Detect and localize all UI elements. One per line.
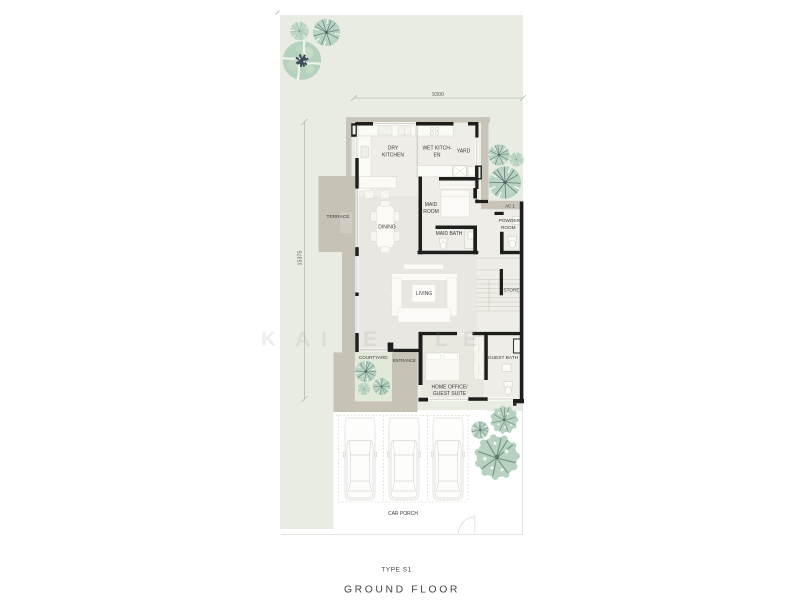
svg-text:EN: EN xyxy=(434,153,441,159)
svg-text:DINING: DINING xyxy=(378,225,396,231)
svg-text:POWDER: POWDER xyxy=(499,218,521,223)
svg-text:CAR PORCH: CAR PORCH xyxy=(388,511,418,517)
svg-text:9300: 9300 xyxy=(432,92,444,98)
svg-text:15375: 15375 xyxy=(298,251,304,266)
svg-text:TYPE S1: TYPE S1 xyxy=(381,567,412,574)
svg-text:COURTYARD: COURTYARD xyxy=(359,355,388,360)
svg-text:MAID BATH: MAID BATH xyxy=(436,231,463,237)
svg-text:GUEST BATH: GUEST BATH xyxy=(488,355,519,361)
svg-text:K: K xyxy=(261,328,276,351)
svg-text:TERRACE: TERRACE xyxy=(327,214,350,220)
svg-text:L: L xyxy=(435,328,448,351)
svg-text:DRY: DRY xyxy=(388,146,399,152)
svg-text:STORE: STORE xyxy=(503,288,519,293)
svg-text:ROOM: ROOM xyxy=(423,209,439,215)
svg-text:I: I xyxy=(321,328,327,351)
svg-text:GUEST SUITE: GUEST SUITE xyxy=(433,391,467,397)
svg-text:MAID: MAID xyxy=(425,202,438,208)
svg-text:HOME OFFICE/: HOME OFFICE/ xyxy=(431,384,468,390)
svg-text:LIVING: LIVING xyxy=(416,291,433,297)
svg-text:ENTRANCE: ENTRANCE xyxy=(393,358,416,363)
svg-text:GROUND FLOOR: GROUND FLOOR xyxy=(344,585,460,596)
svg-text:AC 1: AC 1 xyxy=(505,204,515,209)
svg-text:ROOM: ROOM xyxy=(501,225,516,230)
svg-text:E: E xyxy=(463,328,477,351)
svg-text:YARD: YARD xyxy=(457,149,471,155)
svg-text:KITCHEN: KITCHEN xyxy=(382,153,404,159)
svg-text:A: A xyxy=(295,328,310,351)
svg-text:WET KITCH-: WET KITCH- xyxy=(422,146,451,152)
svg-text:E: E xyxy=(363,328,377,351)
